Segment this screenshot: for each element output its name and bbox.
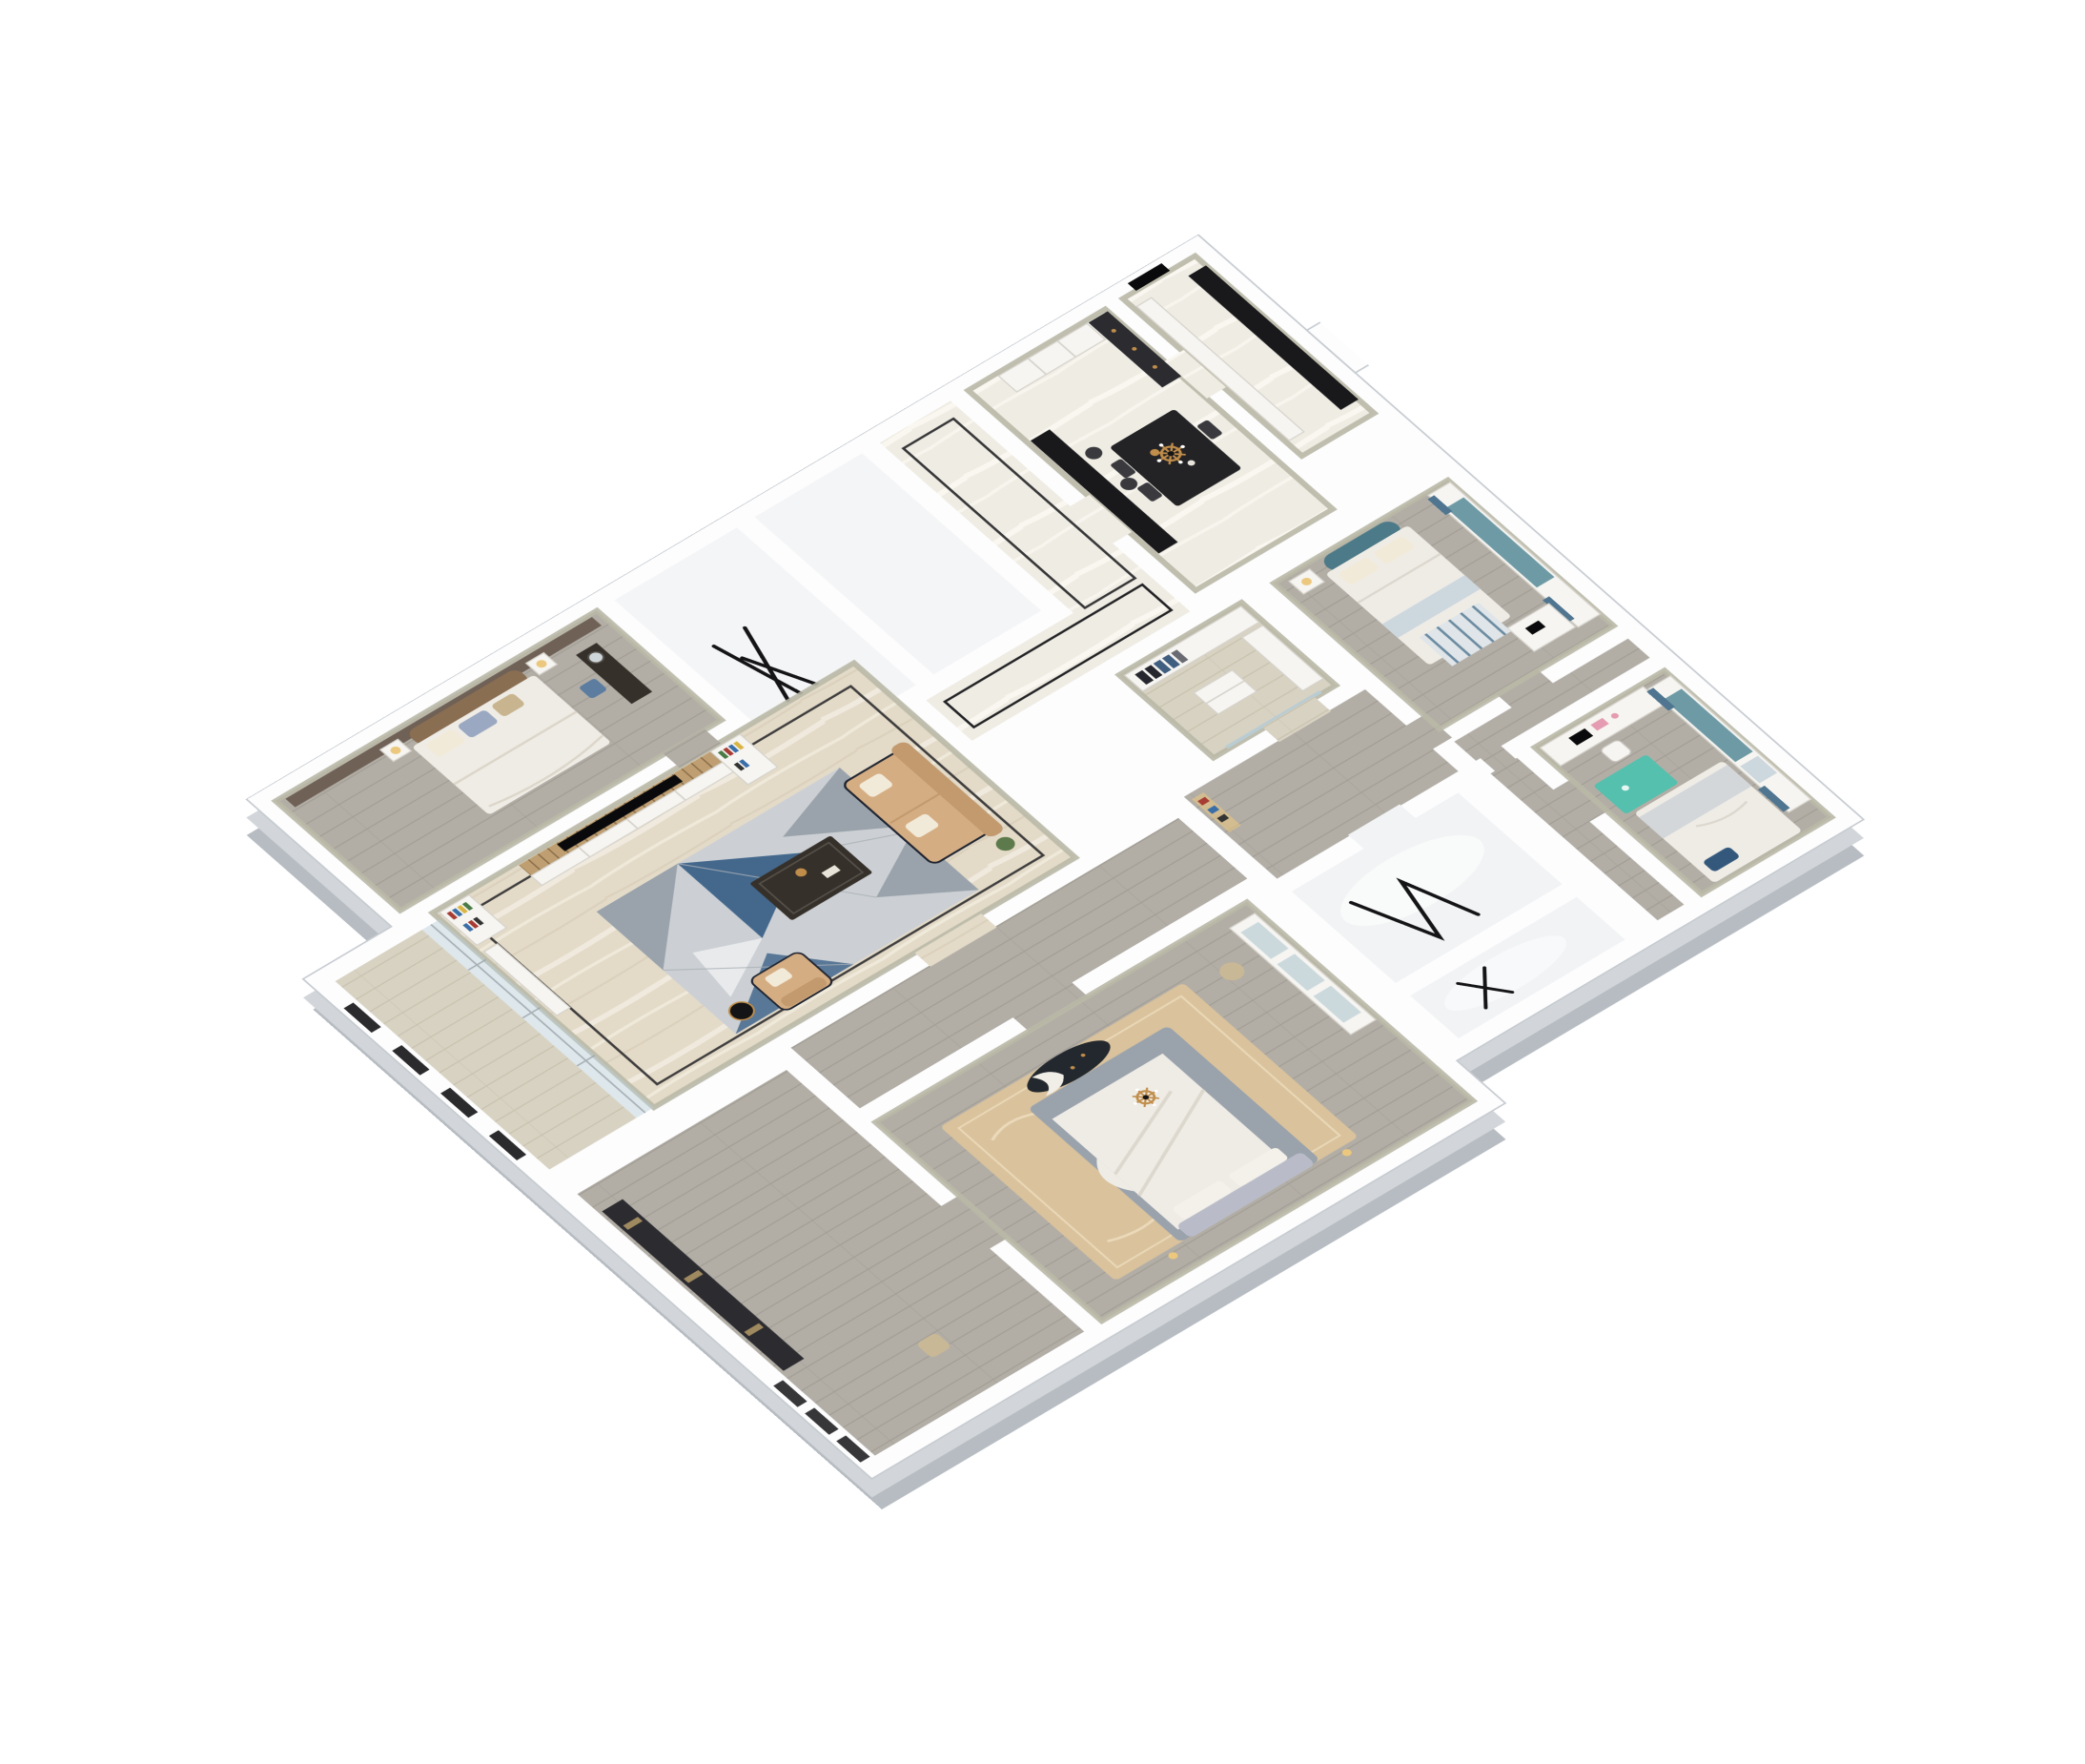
floor-plan-scene bbox=[0, 0, 2085, 1764]
floor-plan-svg bbox=[143, 227, 1968, 1525]
floor-plan-3d bbox=[143, 227, 1968, 1525]
